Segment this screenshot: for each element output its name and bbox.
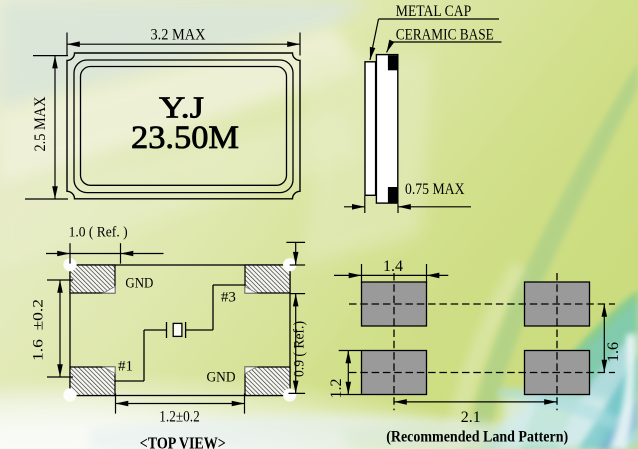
svg-text:23.50M: 23.50M: [131, 120, 239, 156]
svg-text:1.6 ±0.2: 1.6 ±0.2: [31, 299, 47, 361]
svg-text:METAL CAP: METAL CAP: [396, 3, 471, 20]
svg-text:1.2: 1.2: [328, 379, 345, 399]
svg-text:0.9 ( Ref.): 0.9 ( Ref.): [291, 321, 307, 377]
svg-text:2.5 MAX: 2.5 MAX: [32, 97, 49, 152]
svg-text:CERAMIC BASE: CERAMIC BASE: [396, 26, 494, 43]
svg-text:1.6: 1.6: [605, 342, 622, 362]
svg-text:#1: #1: [118, 359, 133, 375]
svg-text:<TOP VIEW>: <TOP VIEW>: [140, 434, 226, 449]
svg-text:#3: #3: [221, 290, 236, 306]
svg-text:1.0 ( Ref. ): 1.0 ( Ref. ): [69, 225, 128, 241]
svg-text:1.4: 1.4: [383, 258, 403, 275]
svg-text:GND: GND: [207, 370, 236, 386]
svg-text:3.2 MAX: 3.2 MAX: [151, 27, 206, 44]
svg-text:1.2±0.2: 1.2±0.2: [159, 408, 200, 425]
svg-text:(Recommended Land Pattern): (Recommended Land Pattern): [386, 428, 568, 445]
svg-text:2.1: 2.1: [461, 409, 481, 426]
svg-text:0.75 MAX: 0.75 MAX: [405, 181, 465, 198]
svg-text:GND: GND: [125, 275, 153, 291]
